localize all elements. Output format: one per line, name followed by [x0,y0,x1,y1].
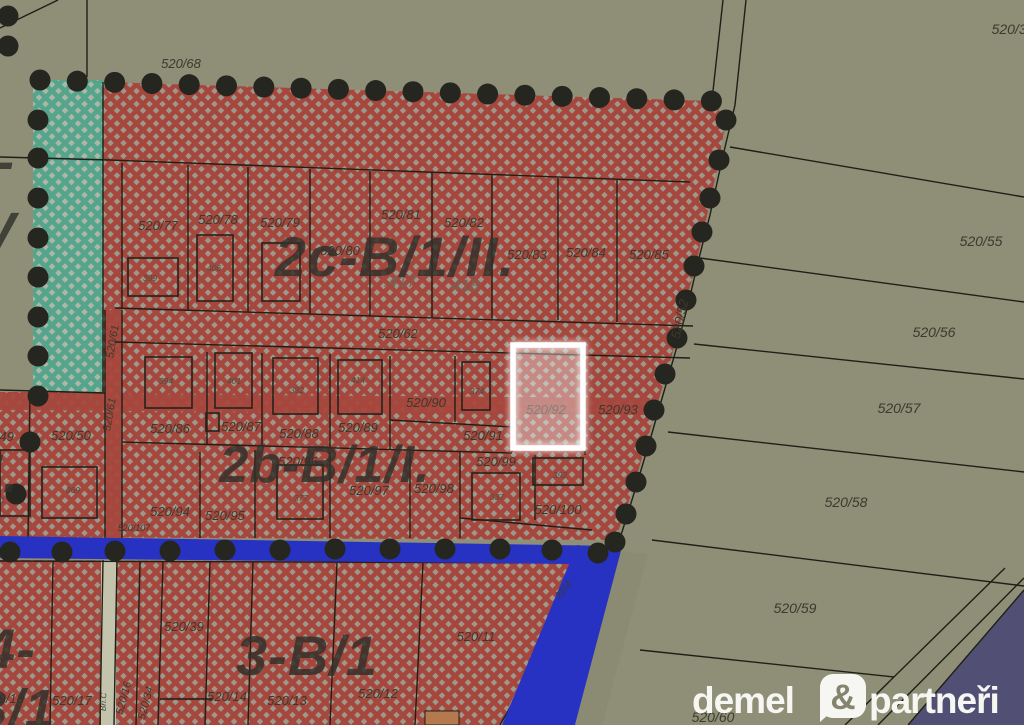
cadastral-map[interactable]: 399406.417.41839440139241437436937137733… [0,0,1024,725]
zone-label: 2b-B/1/I. [218,436,430,494]
parcel-label: 520/87 [221,419,262,434]
boundary-dot [28,267,49,288]
boundary-dot [588,543,609,564]
parcel-label: 520/12 [358,686,399,701]
boundary-dot [215,540,236,561]
house-number-label: 377 [294,493,308,503]
boundary-dot [709,150,730,171]
boundary-dot [477,84,498,105]
boundary-dot [20,432,41,453]
parcel-label: 520/39 [164,619,204,634]
boundary-dot [179,74,200,95]
boundary-dot [716,110,737,131]
boundary-dot [0,542,21,563]
boundary-dot [325,539,346,560]
boundary-dot [655,364,676,385]
boundary-dot [30,70,51,91]
brand-logo: demel & partneři [692,674,999,722]
boundary-dot [552,86,573,107]
boundary-dot [291,78,312,99]
parcel-label: 520/55 [960,233,1003,249]
boundary-dot [542,540,563,561]
parcel-label: 520/81 [381,207,421,222]
cadastral-map-view: 399406.417.41839440139241437436937137733… [0,0,1024,725]
boundary-dot [589,87,610,108]
logo-pin-icon: & [820,674,866,722]
boundary-dot [616,504,637,525]
parcel-label: 520/50 [51,428,92,443]
zone-label: 5- [0,132,15,192]
zone-label: /I. [0,444,19,504]
house-number-label: 374 [470,386,484,396]
house-number-label: 401 [227,376,241,386]
boundary-dot [626,88,647,109]
boundary-dot [216,75,237,96]
boundary-dot [28,346,49,367]
parcel-label: 520/77 [138,218,179,233]
zone-label: B/1 [0,679,56,725]
parcel-label: 520/91 [463,428,503,443]
boundary-dot [28,228,49,249]
boundary-dot [644,400,665,421]
house-number-label: 406 [207,263,221,273]
boundary-dot [105,541,126,562]
zone-label: 3-B/1 [236,624,378,687]
house-number-label: 369 [66,485,80,495]
boundary-dot [28,386,49,407]
boundary-dot [514,85,535,106]
zone-label: 2c-B/1/II. [274,225,515,288]
parcel-label: 520/94 [150,504,190,519]
boundary-dot [440,82,461,103]
highlighted-parcel[interactable] [513,345,583,448]
house-number-label: 414 [351,375,365,385]
house-number-label: 392 [553,470,567,480]
parcel-label: 520/89 [338,420,378,435]
parcel-label: 520/13 [267,693,308,708]
logo-ampersand: & [830,678,855,717]
parcel-label: 520/57 [878,400,922,416]
boundary-dot [67,71,88,92]
house-number-label: 394 [159,376,173,386]
parcel-label: 520/78 [198,212,239,227]
parcel-label: 520/95 [205,508,246,523]
boundary-dot [664,89,685,110]
building-orange [425,711,459,725]
boundary-dot [141,73,162,94]
parcel-label: 520/93 [598,402,639,417]
boundary-dot [403,81,424,102]
parcel-label: 520/62 [378,326,419,341]
parcel-label: 520/14 [207,689,247,704]
parcel-label: 520/100 [535,502,583,517]
boundary-dot [380,539,401,560]
house-number-label: 337 [490,492,504,502]
boundary-dot [328,79,349,100]
parcel-label: 520/86 [150,421,191,436]
parcel-label: 520/11 [457,629,496,644]
boundary-dot [692,222,713,243]
parcel-label: 520/38 [992,21,1024,37]
boundary-dot [684,256,705,277]
logo-word-demel: demel [692,680,794,721]
boundary-dot [700,188,721,209]
parcel-label: 520/107 [118,523,152,533]
boundary-dot [28,148,49,169]
parcel-label: 520/49 [0,429,14,444]
boundary-dot [435,539,456,560]
parcel-label: 520/90 [406,395,447,410]
boundary-dot [104,72,125,93]
boundary-dot [253,77,274,98]
parcel-label: 520/84 [566,245,606,260]
boundary-dot [28,110,49,131]
parcel-label: Bří.Č [99,692,109,711]
boundary-dot [490,539,511,560]
boundary-dot [28,188,49,209]
parcel-label: 520/68 [161,56,202,71]
boundary-dot [636,436,657,457]
boundary-dot [701,91,722,112]
boundary-dot [28,307,49,328]
parcel-label: 520/56 [913,324,956,340]
boundary-dot [160,541,181,562]
parcel-label: 520/99 [476,454,516,469]
house-number-label: 399 [143,273,157,283]
parcel-label: 520/59 [774,600,817,616]
boundary-dot [626,472,647,493]
zone-label: 4- [0,617,36,680]
parcel-label: 520/85 [629,247,670,262]
house-number-label: 392 [290,385,304,395]
boundary-dot [270,540,291,561]
parcel-label: 520/58 [825,494,868,510]
boundary-dot [365,80,386,101]
boundary-dot [52,542,73,563]
logo-word-partneri: partneři [869,680,999,721]
parcel-label: 520/17 [52,693,93,708]
